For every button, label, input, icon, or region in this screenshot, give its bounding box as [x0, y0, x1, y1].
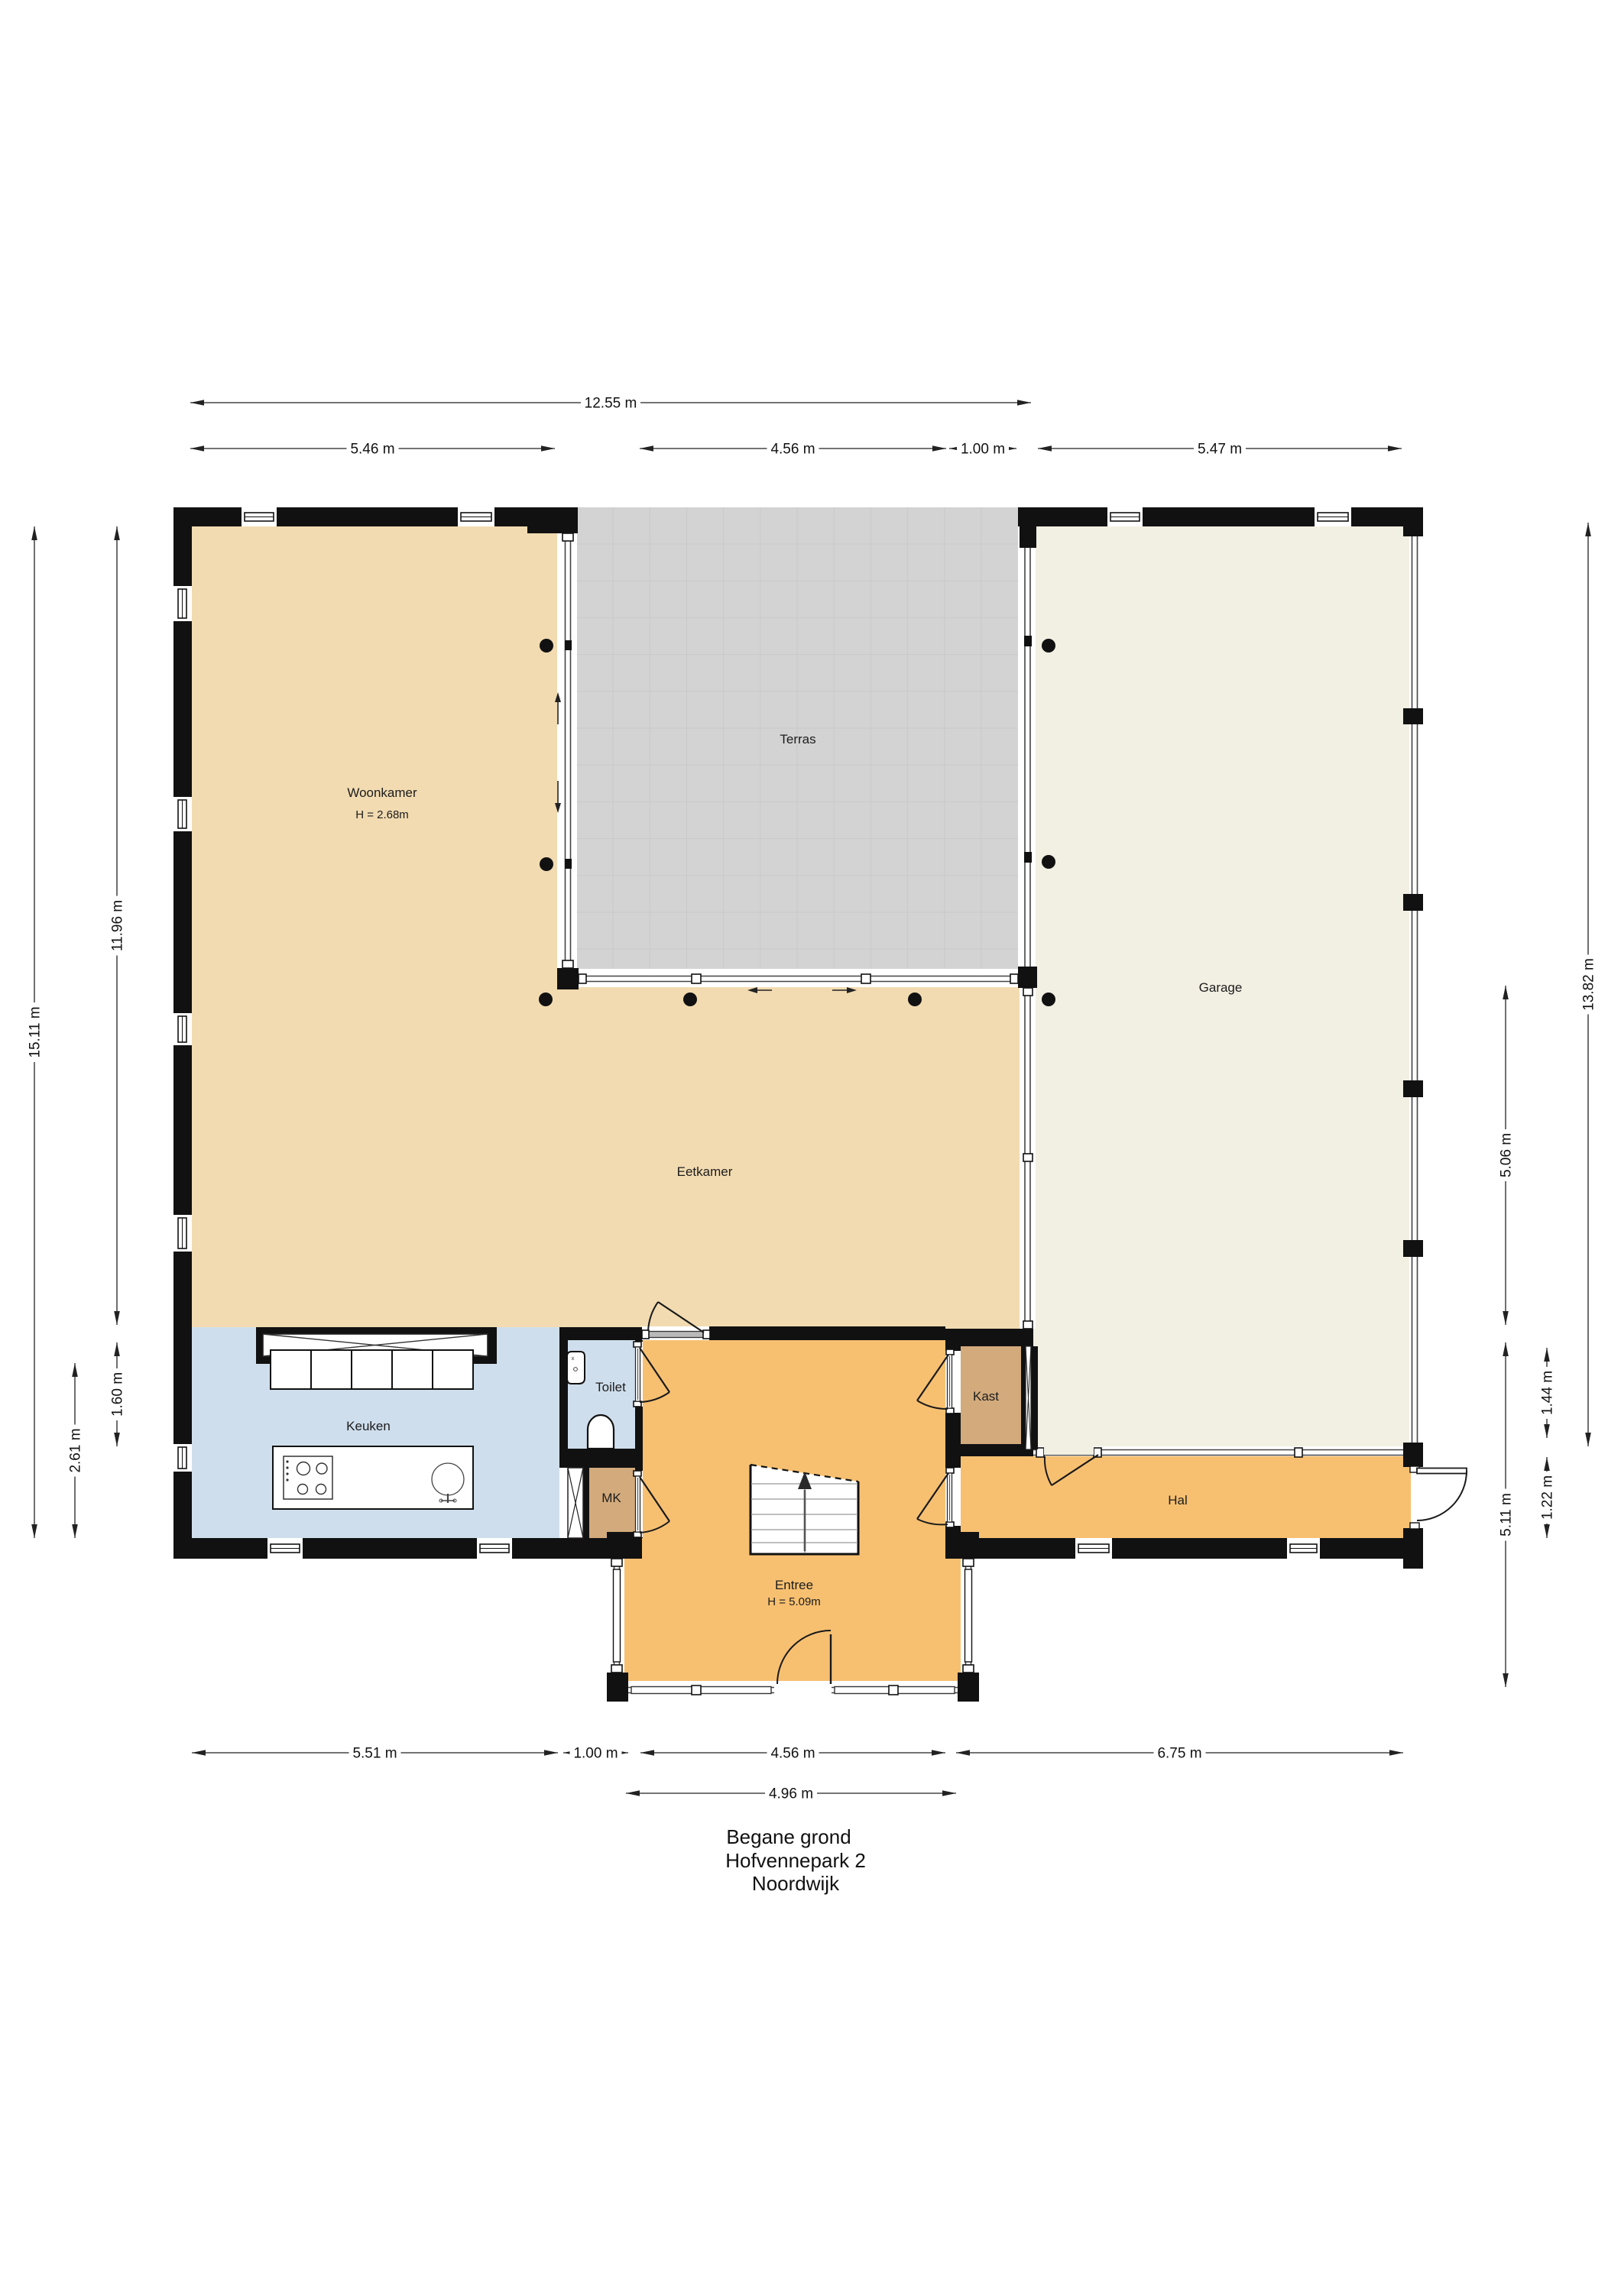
svg-text:Entree: Entree: [775, 1578, 813, 1592]
svg-text:11.96 m: 11.96 m: [110, 900, 126, 951]
svg-text:5.46 m: 5.46 m: [350, 442, 394, 458]
svg-text:Terras: Terras: [780, 732, 815, 746]
svg-text:4.56 m: 4.56 m: [770, 442, 815, 458]
svg-text:12.55 m: 12.55 m: [585, 396, 637, 412]
svg-text:Noordwijk: Noordwijk: [752, 1872, 840, 1895]
svg-text:5.11 m: 5.11 m: [1499, 1493, 1515, 1537]
svg-text:2.61 m: 2.61 m: [68, 1428, 84, 1472]
svg-text:H = 5.09m: H = 5.09m: [767, 1595, 821, 1608]
svg-text:MK: MK: [601, 1491, 621, 1505]
svg-text:6.75 m: 6.75 m: [1157, 1746, 1201, 1762]
svg-text:Garage: Garage: [1199, 980, 1243, 995]
svg-text:4.56 m: 4.56 m: [770, 1746, 815, 1762]
svg-text:1.60 m: 1.60 m: [110, 1372, 126, 1417]
svg-text:Hofvennepark 2: Hofvennepark 2: [725, 1849, 866, 1872]
svg-text:5.47 m: 5.47 m: [1198, 442, 1242, 458]
svg-text:13.82 m: 13.82 m: [1581, 958, 1597, 1011]
svg-text:1.44 m: 1.44 m: [1540, 1371, 1556, 1415]
svg-text:Kast: Kast: [973, 1389, 999, 1404]
svg-text:Eetkamer: Eetkamer: [677, 1164, 733, 1179]
svg-text:H = 2.68m: H = 2.68m: [355, 808, 409, 821]
svg-text:Begane grond: Begane grond: [726, 1825, 851, 1848]
svg-text:Keuken: Keuken: [346, 1419, 391, 1433]
svg-text:Hal: Hal: [1168, 1493, 1188, 1507]
svg-text:Toilet: Toilet: [595, 1380, 626, 1394]
svg-text:1.00 m: 1.00 m: [573, 1746, 618, 1762]
svg-text:5.51 m: 5.51 m: [352, 1746, 397, 1762]
svg-text:4.96 m: 4.96 m: [769, 1786, 813, 1802]
svg-text:1.00 m: 1.00 m: [961, 442, 1005, 458]
svg-text:5.06 m: 5.06 m: [1499, 1133, 1515, 1177]
svg-text:15.11 m: 15.11 m: [28, 1006, 44, 1057]
svg-text:1.22 m: 1.22 m: [1540, 1475, 1556, 1520]
svg-text:Woonkamer: Woonkamer: [347, 785, 417, 800]
